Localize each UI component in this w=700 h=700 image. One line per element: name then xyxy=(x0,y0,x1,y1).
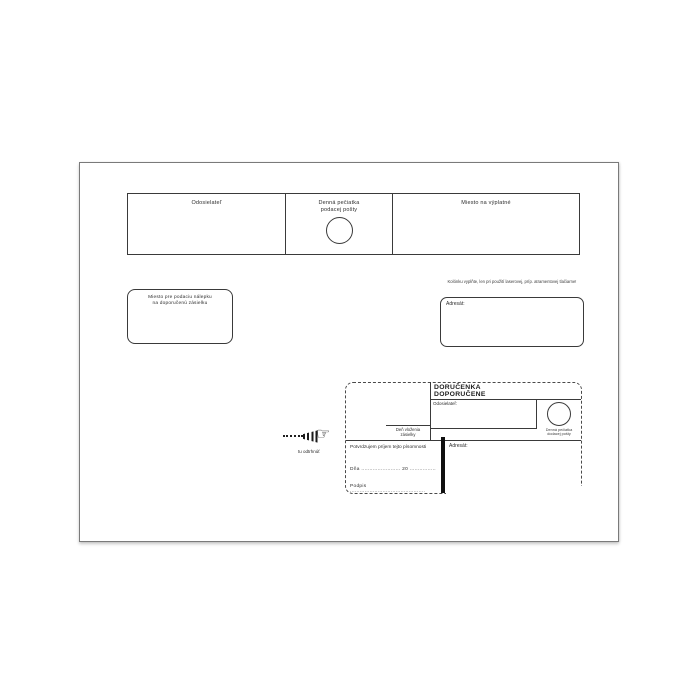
postmark-label-line2: podacej pošty xyxy=(321,207,358,213)
postmark-box: Denná pečiatka podacej pošty xyxy=(286,194,393,254)
outline-gap-corner xyxy=(575,486,583,495)
printer-note: Kolónku vyplňte, len pri použití laserov… xyxy=(434,279,590,284)
addressee-box: Adresát: xyxy=(440,297,584,347)
registration-sticker-box: Miesto pre podaciu nálepku na doporučenú… xyxy=(127,289,233,344)
slip-addressee-label: Adresát: xyxy=(449,443,468,449)
registration-label-line1: Miesto pre podaciu nálepku xyxy=(148,295,212,300)
deposit-day-cell: Deň vloženia zásielky xyxy=(386,425,430,440)
outline-gap-bottom xyxy=(446,492,578,495)
postmark-label: Denná pečiatka podacej pošty xyxy=(286,194,392,213)
registration-label-line2: na doporučenú zásielku xyxy=(152,301,207,306)
delivery-postmark-caption: Denná pečiatka dodacej pošty xyxy=(537,428,581,437)
receipt-confirmation-box: Potvrdzujem príjem tejto písomnosti Dňa … xyxy=(346,440,442,493)
postage-label: Miesto na výplatné xyxy=(393,194,579,207)
slip-title-line2: DOPORUČENE xyxy=(434,391,486,398)
pointing-hand-icon: ☞ xyxy=(316,427,330,443)
addressee-label: Adresát: xyxy=(441,298,583,307)
confirmation-text: Potvrdzujem príjem tejto písomnosti xyxy=(350,445,426,450)
slip-title-line1: DORUČENKA xyxy=(434,384,481,391)
top-strip: Odosielateľ Denná pečiatka podacej pošty… xyxy=(127,193,580,255)
scanned-page: Odosielateľ Denná pečiatka podacej pošty… xyxy=(0,0,700,700)
postage-box: Miesto na výplatné xyxy=(393,194,579,254)
postmark-label-line1: Denná pečiatka xyxy=(318,200,359,206)
deposit-day-line2: zásielky xyxy=(401,432,416,437)
thick-separator-bar xyxy=(441,437,445,493)
tear-off-label: tu odtrhnúť xyxy=(278,449,340,454)
slip-sender-box: Odosielateľ: xyxy=(430,399,537,429)
sender-box: Odosielateľ xyxy=(128,194,286,254)
slip-section-line xyxy=(430,440,581,441)
signature-line: Podpis .................................… xyxy=(350,484,442,494)
delivery-postmark-circle-icon xyxy=(547,402,571,426)
slip-title: DORUČENKA DOPORUČENE xyxy=(434,384,486,399)
perforation-dots xyxy=(283,435,303,437)
delivery-slip: DORUČENKA DOPORUČENE Odosielateľ: Denná … xyxy=(345,382,582,494)
tear-off-marker: ☞ tu odtrhnúť xyxy=(283,427,345,459)
registration-sticker-label: Miesto pre podaciu nálepku na doporučenú… xyxy=(128,290,232,306)
envelope-front: Odosielateľ Denná pečiatka podacej pošty… xyxy=(79,162,619,542)
postmark-circle-icon xyxy=(326,217,353,244)
slip-sender-label: Odosielateľ: xyxy=(433,401,457,406)
sender-label: Odosielateľ xyxy=(128,194,285,207)
date-line: Dňa ........................ 20 ........… xyxy=(350,467,436,472)
delivery-postmark-caption-line2: dodacej pošty xyxy=(547,432,570,436)
